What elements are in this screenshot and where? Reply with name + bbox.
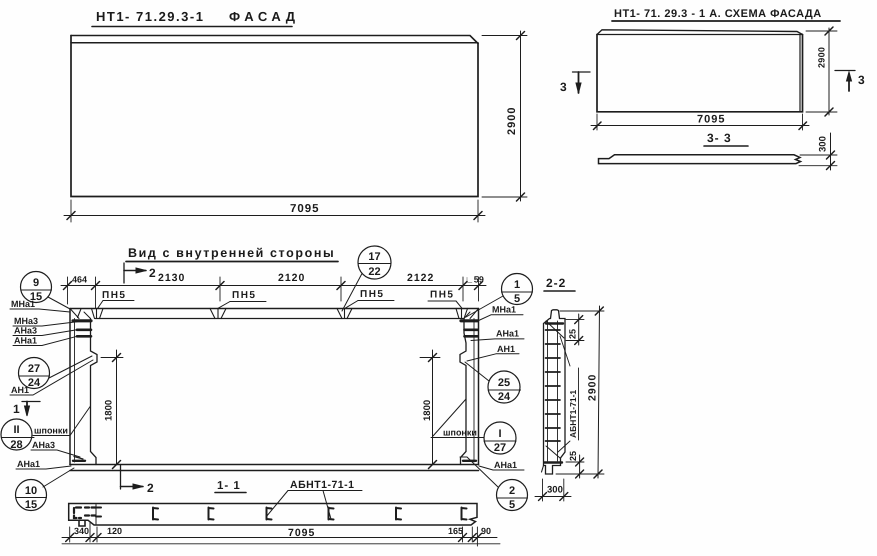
svg-text:1800: 1800 bbox=[422, 400, 433, 421]
svg-text:АНа1: АНа1 bbox=[14, 336, 37, 346]
svg-text:АНа3: АНа3 bbox=[14, 326, 37, 336]
svg-text:2-2: 2-2 bbox=[546, 276, 566, 290]
svg-text:22: 22 bbox=[368, 266, 380, 278]
svg-text:2900: 2900 bbox=[817, 47, 827, 68]
svg-text:90: 90 bbox=[481, 526, 491, 536]
svg-text:7095: 7095 bbox=[290, 203, 320, 215]
svg-text:9: 9 bbox=[33, 277, 39, 289]
svg-text:НТ1- 71.29.3-1: НТ1- 71.29.3-1 bbox=[96, 9, 204, 24]
svg-text:1800: 1800 bbox=[104, 400, 115, 421]
svg-text:464: 464 bbox=[72, 275, 87, 285]
svg-text:165: 165 bbox=[448, 526, 463, 536]
svg-text:ПН5: ПН5 bbox=[430, 290, 454, 301]
svg-text:НТ1- 71. 29.3 - 1 А. СХЕМА ФАС: НТ1- 71. 29.3 - 1 А. СХЕМА ФАСАДА bbox=[614, 8, 822, 20]
svg-text:25: 25 bbox=[568, 451, 578, 461]
svg-text:шпонки: шпонки bbox=[443, 428, 477, 438]
svg-text:27: 27 bbox=[28, 363, 40, 375]
svg-text:28: 28 bbox=[10, 439, 22, 451]
svg-text:340: 340 bbox=[74, 526, 89, 536]
svg-text:ПН5: ПН5 bbox=[232, 290, 256, 301]
svg-text:300: 300 bbox=[547, 485, 563, 496]
svg-text:3: 3 bbox=[560, 80, 567, 94]
svg-text:МНа1: МНа1 bbox=[492, 305, 516, 315]
svg-text:2: 2 bbox=[149, 266, 156, 280]
svg-text:МНа3: МНа3 bbox=[14, 316, 38, 326]
svg-text:5: 5 bbox=[514, 293, 520, 305]
svg-text:24: 24 bbox=[28, 377, 41, 389]
svg-text:10: 10 bbox=[25, 485, 37, 497]
svg-text:3: 3 bbox=[858, 73, 865, 87]
svg-text:1- 1: 1- 1 bbox=[217, 480, 241, 492]
svg-text:5: 5 bbox=[509, 499, 515, 511]
svg-text:∟59: ∟59 bbox=[465, 275, 484, 285]
svg-text:7095: 7095 bbox=[288, 527, 315, 539]
svg-text:2: 2 bbox=[147, 481, 154, 495]
svg-text:ФАСАД: ФАСАД bbox=[229, 9, 300, 24]
svg-text:2900: 2900 bbox=[506, 107, 518, 135]
svg-text:1: 1 bbox=[514, 279, 520, 291]
svg-text:2122: 2122 bbox=[407, 272, 434, 284]
svg-text:25: 25 bbox=[498, 377, 510, 389]
svg-text:1: 1 bbox=[13, 402, 20, 416]
svg-text:2: 2 bbox=[509, 485, 515, 497]
svg-text:АНа1: АНа1 bbox=[17, 459, 40, 469]
svg-text:2120: 2120 bbox=[278, 272, 305, 284]
svg-text:120: 120 bbox=[107, 526, 122, 536]
svg-text:15: 15 bbox=[25, 499, 37, 511]
svg-text:2130: 2130 bbox=[158, 272, 185, 284]
svg-text:ПН5: ПН5 bbox=[102, 290, 126, 301]
svg-text:24: 24 bbox=[498, 391, 511, 403]
svg-text:АБНТ1-71-1: АБНТ1-71-1 bbox=[290, 479, 354, 491]
svg-text:27: 27 bbox=[494, 442, 506, 454]
svg-text:ПН5: ПН5 bbox=[360, 289, 384, 300]
svg-text:шпонки: шпонки bbox=[34, 426, 68, 436]
svg-text:МНа1: МНа1 bbox=[11, 299, 35, 309]
svg-text:АБНТ1-71-1: АБНТ1-71-1 bbox=[568, 390, 578, 438]
svg-text:АНа1: АНа1 bbox=[496, 329, 519, 339]
svg-text:Вид с внутренней стороны: Вид с внутренней стороны bbox=[128, 246, 335, 260]
svg-text:300: 300 bbox=[818, 136, 829, 152]
svg-text:II: II bbox=[13, 424, 19, 436]
svg-text:АНа1: АНа1 bbox=[494, 460, 517, 470]
svg-text:7095: 7095 bbox=[697, 114, 725, 126]
svg-text:АН1: АН1 bbox=[497, 344, 515, 354]
svg-text:17: 17 bbox=[368, 251, 380, 263]
svg-text:3- 3: 3- 3 bbox=[707, 131, 732, 145]
svg-text:25: 25 bbox=[568, 329, 578, 339]
svg-text:АН1: АН1 bbox=[11, 385, 29, 395]
svg-text:АНа3: АНа3 bbox=[32, 440, 55, 450]
svg-text:2900: 2900 bbox=[587, 374, 599, 401]
svg-text:I: I bbox=[498, 428, 501, 440]
